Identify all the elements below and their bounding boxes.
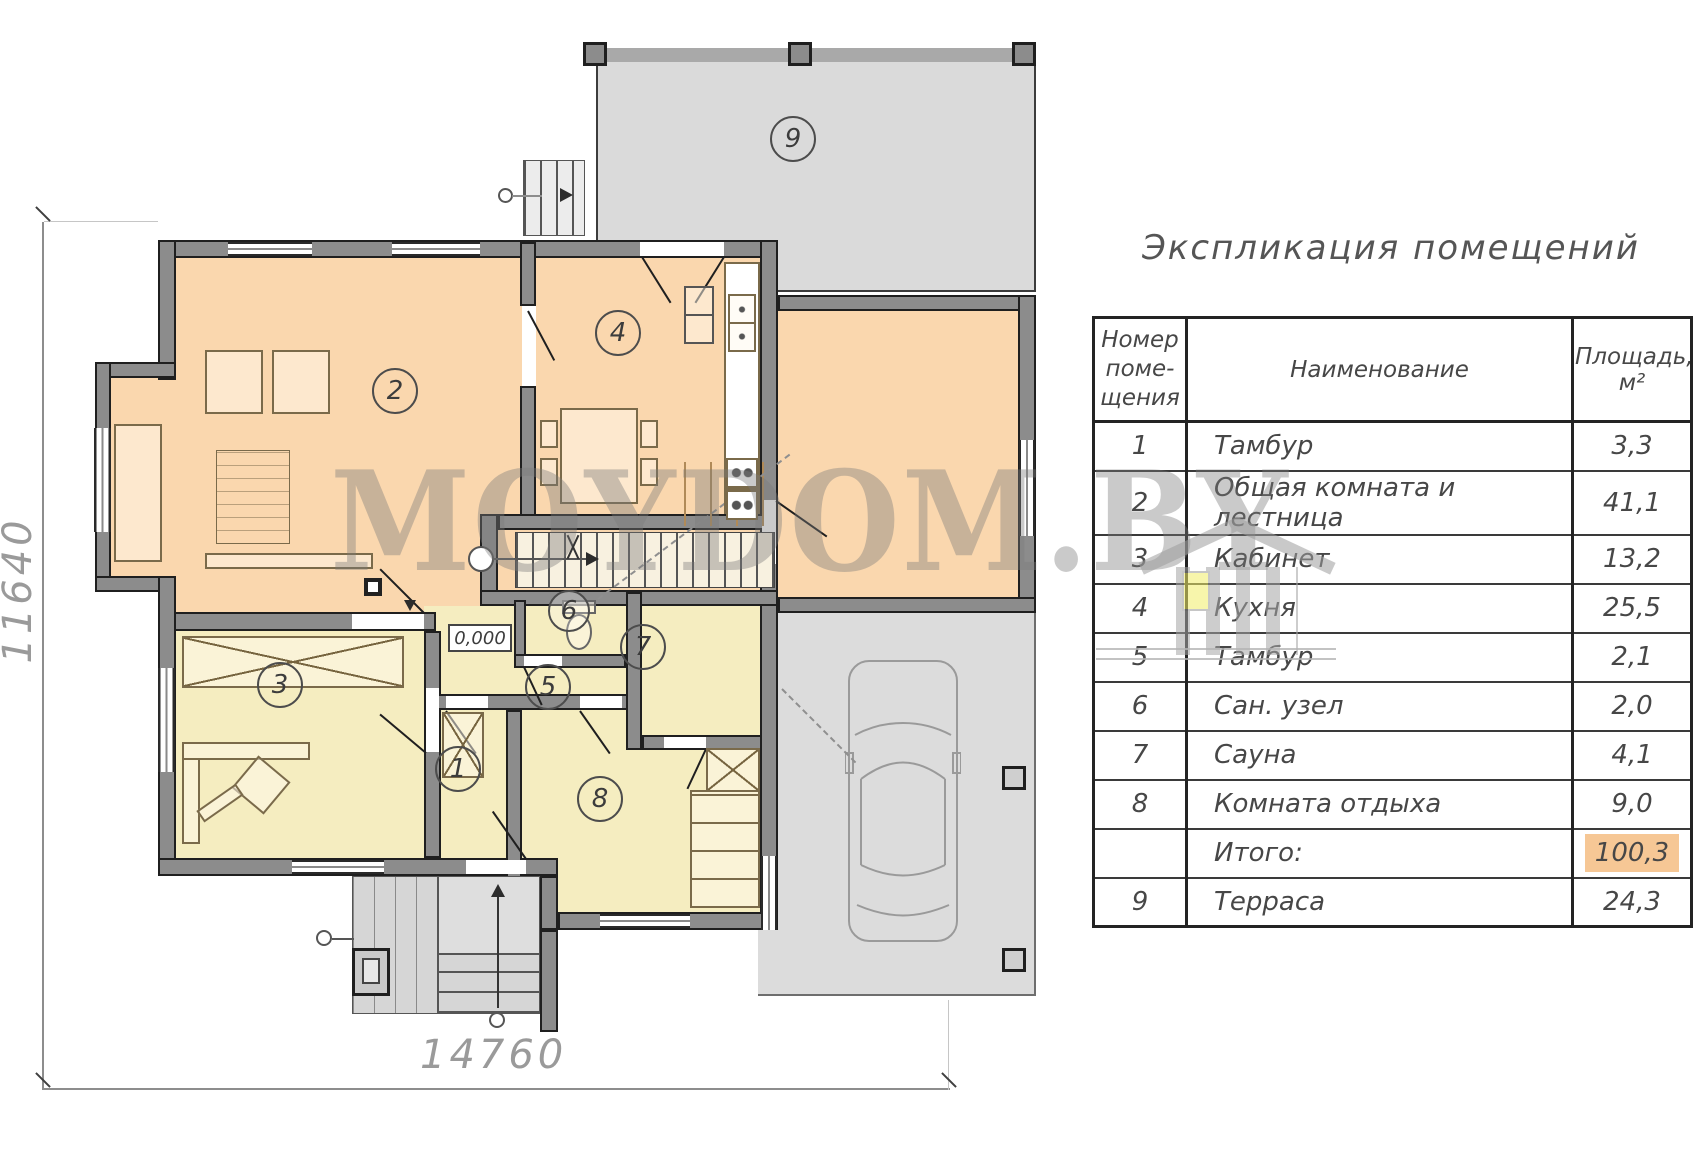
wall-dining-top xyxy=(778,295,1036,311)
table-row: 8Комната отдыха9,0 xyxy=(1094,780,1692,829)
door-opening xyxy=(580,696,622,708)
room-number-label: 9 xyxy=(785,124,802,154)
room-number-label: 6 xyxy=(561,596,578,626)
level-mark-value: 0,000 xyxy=(454,628,506,649)
room-number-4: 4 xyxy=(595,310,641,356)
dimension-height-label: 11640 xyxy=(0,516,41,663)
terrace-column xyxy=(583,42,607,66)
window xyxy=(392,242,480,256)
armchair xyxy=(205,350,263,414)
porch-column-inner xyxy=(362,958,380,984)
cell-name: Комната отдыха xyxy=(1187,780,1573,829)
window xyxy=(1019,440,1035,536)
cell-number: 3 xyxy=(1094,535,1187,584)
terrace-column xyxy=(788,42,812,66)
cell-area: 13,2 xyxy=(1573,535,1692,584)
staircase-dashed-upper xyxy=(660,462,778,526)
stairs-direction-arrow xyxy=(560,188,573,202)
cell-number: 8 xyxy=(1094,780,1187,829)
room-number-8: 8 xyxy=(577,776,623,822)
room-number-label: 5 xyxy=(540,672,557,702)
wall-living-kitchen-stub xyxy=(520,242,536,306)
stairs-leader-line xyxy=(512,195,542,197)
sauna-heater xyxy=(706,748,760,792)
porch-direction-arrow xyxy=(491,884,505,897)
cell-name: Тамбур xyxy=(1187,633,1573,682)
wall-connector xyxy=(540,876,558,930)
explication-table: Номер поме- щения Наименование Площадь, … xyxy=(1092,316,1693,928)
table-header-row: Номер поме- щения Наименование Площадь, … xyxy=(1094,318,1692,422)
cell-name: Тамбур xyxy=(1187,422,1573,471)
door-opening xyxy=(426,688,439,752)
dimension-tick xyxy=(35,206,51,222)
wall-porch-right xyxy=(540,930,558,1032)
table-row: 3Кабинет13,2 xyxy=(1094,535,1692,584)
dimension-line-horizontal xyxy=(42,1088,950,1090)
car-top-view-icon xyxy=(845,655,961,947)
cell-number: 1 xyxy=(1094,422,1187,471)
carport-column xyxy=(1002,766,1026,790)
window xyxy=(158,668,175,772)
chimney-marker xyxy=(364,578,382,596)
chair xyxy=(640,458,658,486)
chair xyxy=(540,420,558,448)
header-room-number: Номер поме- щения xyxy=(1094,318,1187,422)
window xyxy=(761,856,777,930)
sofa xyxy=(114,424,162,562)
stove xyxy=(726,458,758,520)
cell-name: Кабинет xyxy=(1187,535,1573,584)
kitchen-sink xyxy=(728,294,756,352)
room-number-9: 9 xyxy=(770,116,816,162)
level-mark: 0,000 xyxy=(448,624,512,652)
door-opening xyxy=(664,737,706,748)
carport-column xyxy=(1002,948,1026,972)
extension-line xyxy=(44,221,158,222)
porch-landing xyxy=(438,876,540,954)
table-row: 5Тамбур2,1 xyxy=(1094,633,1692,682)
window xyxy=(94,428,111,532)
cell-name: Сан. узел xyxy=(1187,682,1573,731)
cell-name: Сауна xyxy=(1187,731,1573,780)
window xyxy=(292,860,384,874)
wall-dining-bottom xyxy=(778,597,1036,613)
level-marker-arrow xyxy=(404,600,416,611)
table-row: 9Терраса24,3 xyxy=(1094,878,1692,927)
room-number-label: 3 xyxy=(272,670,289,700)
stair-direction-arrow xyxy=(586,552,599,566)
terrace-stairs xyxy=(523,160,585,236)
cell-number: 5 xyxy=(1094,633,1187,682)
floor-plan-sheet: 1 2 3 4 5 6 7 8 9 0,000 14760 11640 MOYD… xyxy=(0,0,1700,1156)
desk xyxy=(182,758,200,844)
cell-number: 6 xyxy=(1094,682,1187,731)
room-number-1: 1 xyxy=(435,746,481,792)
room-number-label: 7 xyxy=(635,632,652,662)
explication-title: Экспликация помещений xyxy=(1092,228,1690,268)
couch xyxy=(690,790,760,908)
room-number-6: 6 xyxy=(548,590,590,632)
room-number-2: 2 xyxy=(372,368,418,414)
terrace-column xyxy=(1012,42,1036,66)
cell-name: Общая комната и лестница xyxy=(1187,471,1573,535)
porch-leader-circle xyxy=(489,1012,505,1028)
room-number-3: 3 xyxy=(257,662,303,708)
desk xyxy=(182,742,310,760)
porch-leader-line xyxy=(332,938,354,940)
door-opening xyxy=(352,614,424,629)
cell-area: 25,5 xyxy=(1573,584,1692,633)
room-number-label: 4 xyxy=(610,318,627,348)
table-row: 4Кухня25,5 xyxy=(1094,584,1692,633)
cell-area: 4,1 xyxy=(1573,731,1692,780)
cell-number xyxy=(1094,829,1187,878)
dining-table xyxy=(560,408,638,504)
table-row: 1Тамбур3,3 xyxy=(1094,422,1692,471)
porch-steps xyxy=(438,954,540,1014)
stair-leader-circle xyxy=(468,546,494,572)
cell-number: 4 xyxy=(1094,584,1187,633)
cell-area: 9,0 xyxy=(1573,780,1692,829)
cell-number: 2 xyxy=(1094,471,1187,535)
cell-area: 41,1 xyxy=(1573,471,1692,535)
room-number-label: 2 xyxy=(387,376,404,406)
header-room-name: Наименование xyxy=(1187,318,1573,422)
cell-name: Терраса xyxy=(1187,878,1573,927)
cell-area: 24,3 xyxy=(1573,878,1692,927)
room-number-label: 8 xyxy=(592,784,609,814)
window xyxy=(600,914,690,928)
cell-area-total: 100,3 xyxy=(1573,829,1692,878)
room-number-7: 7 xyxy=(620,624,666,670)
table-row: 2Общая комната и лестница41,1 xyxy=(1094,471,1692,535)
table-row: 7Сауна4,1 xyxy=(1094,731,1692,780)
total-area-highlight: 100,3 xyxy=(1585,834,1679,872)
staircase xyxy=(515,532,775,588)
chair xyxy=(540,458,558,486)
dimension-line-vertical xyxy=(42,222,44,1090)
armchair xyxy=(272,350,330,414)
door-opening xyxy=(640,242,724,256)
room-number-label: 1 xyxy=(450,754,467,784)
dimension-tick xyxy=(941,1072,957,1088)
cell-number: 7 xyxy=(1094,731,1187,780)
stair-leader-line xyxy=(492,558,588,560)
header-room-area: Площадь, м² xyxy=(1573,318,1692,422)
cell-name-total: Итого: xyxy=(1187,829,1573,878)
boiler xyxy=(684,286,714,344)
cell-name: Кухня xyxy=(1187,584,1573,633)
window xyxy=(228,242,312,256)
wall-living-east xyxy=(520,386,536,530)
door-opening xyxy=(446,696,488,708)
rug xyxy=(216,450,290,544)
cell-number: 9 xyxy=(1094,878,1187,927)
cell-area: 2,0 xyxy=(1573,682,1692,731)
porch-leader-circle xyxy=(316,930,332,946)
terrace-wall-band xyxy=(596,48,1036,62)
cell-area: 2,1 xyxy=(1573,633,1692,682)
table-row-total: Итого:100,3 xyxy=(1094,829,1692,878)
stairs-leader-circle xyxy=(498,188,513,203)
door-opening xyxy=(466,860,526,874)
room-number-5: 5 xyxy=(525,664,571,710)
tv-stand xyxy=(205,553,373,569)
wall-sauna-left xyxy=(626,592,642,750)
room-dining xyxy=(778,311,1018,597)
dimension-width-label: 14760 xyxy=(420,1032,567,1078)
chair xyxy=(640,420,658,448)
cell-area: 3,3 xyxy=(1573,422,1692,471)
table-row: 6Сан. узел2,0 xyxy=(1094,682,1692,731)
wall-left-upper xyxy=(158,240,176,380)
porch-arrow-line xyxy=(497,896,499,1008)
extension-line xyxy=(948,1000,949,1090)
